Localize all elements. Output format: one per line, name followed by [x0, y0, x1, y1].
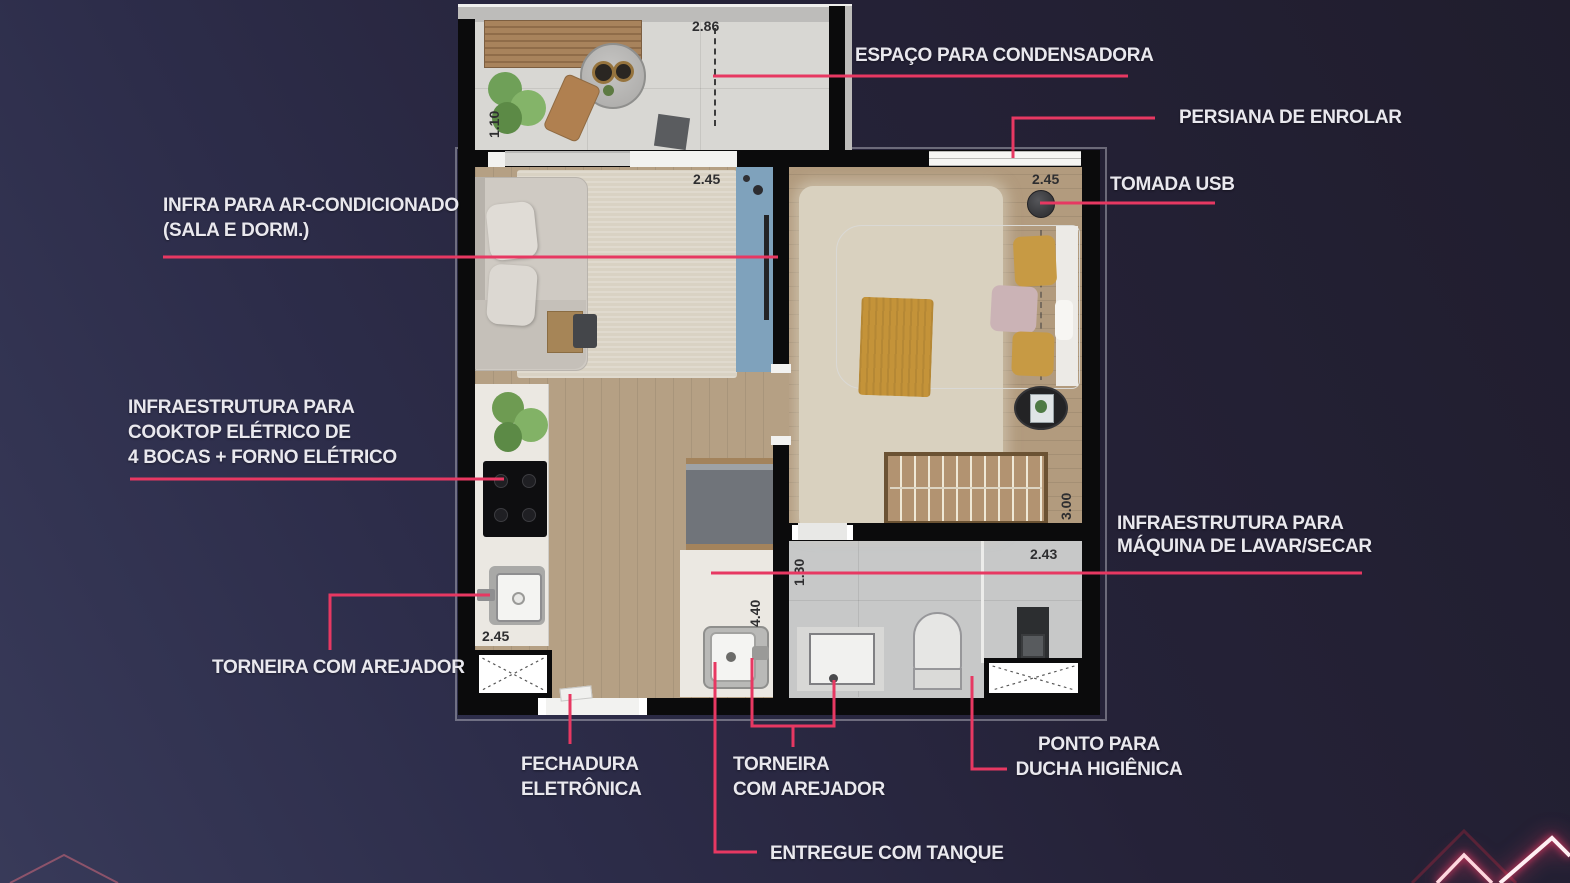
toilet-cistern: [913, 668, 962, 690]
dorm2-pillow-mustard-2: [1011, 331, 1055, 376]
cooktop-burner-4: [522, 508, 536, 522]
wall-right: [1082, 150, 1100, 715]
label-persiana: PERSIANA DE ENROLAR: [1179, 105, 1402, 130]
label-infra-maquina: INFRAESTRUTURA PARA MÁQUINA DE LAVAR/SEC…: [1117, 512, 1372, 558]
balcony-left-wall: [458, 19, 475, 151]
label-ponto-ducha: PONTO PARA DUCHA HIGIÊNICA: [1013, 732, 1185, 782]
washer-space-inner: [1021, 634, 1045, 658]
label-fechadura-line2: ELETRÔNICA: [521, 777, 642, 802]
label-espaco-condensadora-line1: ESPAÇO PARA CONDENSADORA: [855, 43, 1154, 68]
mountain-neon-small: [1437, 855, 1492, 883]
balcony-door-jamb: [488, 152, 505, 167]
bathroom-tile-line-h: [789, 600, 1082, 601]
dorm2-pillow-pink: [990, 285, 1038, 333]
label-infra-ar: INFRA PARA AR-CONDICIONADO (SALA E DORM.…: [163, 193, 459, 243]
cooktop-burner-2: [522, 474, 536, 488]
hall-door-jamb-bottom: [771, 436, 791, 445]
dim-banheiro-largura: 2.43: [1030, 546, 1057, 562]
kitchen-shaft: [474, 650, 552, 698]
dim-sala-profundidade: 4.40: [747, 600, 763, 627]
label-ponto-ducha-line1: PONTO PARA: [1013, 732, 1185, 757]
dorm1-tv: [764, 215, 769, 320]
bathroom-door-jamb-left: [792, 525, 798, 540]
cooktop: [483, 461, 547, 537]
balcony-tile-line-v2: [700, 18, 701, 150]
dorm2-pillow-white: [1055, 300, 1073, 340]
entry-door-jamb-right: [639, 698, 647, 715]
label-infra-cooktop: INFRAESTRUTURA PARA COOKTOP ELÉTRICO DE …: [128, 395, 397, 470]
kitchen-faucet: [477, 589, 495, 601]
table-bowl-1: [592, 61, 615, 84]
label-torneira-banheiro: TORNEIRA COM AREJADOR: [733, 752, 885, 802]
bathroom-divider: [981, 541, 984, 663]
hall-door-floor: [773, 373, 789, 436]
balcony-sliding-door: [505, 151, 630, 166]
dim-banheiro-profundidade: 1.30: [791, 559, 807, 586]
bathroom-door-opening: [798, 523, 847, 540]
label-infra-ar-line1: INFRA PARA AR-CONDICIONADO: [163, 193, 459, 218]
bath-basin-faucet: [829, 674, 838, 683]
label-infra-maquina-line1: INFRAESTRUTURA PARA: [1117, 512, 1372, 535]
wardrobe-rail: [890, 487, 1042, 489]
label-infra-cooktop-line1: INFRAESTRUTURA PARA: [128, 395, 397, 420]
bathroom-shaft: [984, 658, 1083, 698]
hall-door-jamb-top: [771, 364, 791, 373]
dorm2-pillow-mustard-1: [1013, 235, 1058, 287]
label-entregue-tanque-line1: ENTREGUE COM TANQUE: [770, 841, 1004, 866]
dorm1-shelf-dot-2: [753, 185, 763, 195]
bath-basin: [809, 633, 875, 685]
balcony-right-outer: [845, 6, 852, 151]
table-plant: [603, 85, 614, 96]
label-espaco-condensadora: ESPAÇO PARA CONDENSADORA: [855, 43, 1154, 68]
label-torneira-banheiro-line2: COM AREJADOR: [733, 777, 885, 802]
side-table-plant-leaves: [1035, 400, 1047, 413]
wall-left: [458, 150, 475, 715]
kitchen-plant-leaf3: [494, 422, 522, 452]
label-torneira-cozinha: TORNEIRA COM AREJADOR: [212, 655, 465, 680]
dim-dorm2-largura: 2.45: [1032, 171, 1059, 187]
corner-decor-left: [0, 843, 140, 883]
entry-door-jamb-left: [538, 698, 546, 715]
label-tomada-usb: TOMADA USB: [1110, 172, 1235, 197]
label-persiana-line1: PERSIANA DE ENROLAR: [1179, 105, 1402, 130]
dim-dorm2-profundidade: 3.00: [1058, 493, 1074, 520]
dorm1-pillow-1: [485, 201, 539, 262]
dim-cozinha-largura: 2.45: [482, 628, 509, 644]
label-fechadura-line1: FECHADURA: [521, 752, 642, 777]
label-fechadura: FECHADURA ELETRÔNICA: [521, 752, 642, 802]
mountain-neon-large: [1500, 838, 1570, 883]
usb-socket: [1027, 190, 1055, 218]
balcony-tile-line-h1: [475, 88, 829, 89]
dim-varanda-profundidade: 1.10: [486, 111, 502, 138]
dim-varanda-largura: 2.86: [692, 18, 719, 34]
kitchen-shaft-x: [479, 655, 547, 693]
dorm2-window-mullion: [929, 158, 1081, 159]
label-infra-cooktop-line3: 4 BOCAS + FORNO ELÉTRICO: [128, 445, 397, 470]
dorm1-chair: [573, 314, 597, 348]
label-ponto-ducha-line2: DUCHA HIGIÊNICA: [1013, 757, 1185, 782]
condenser-mat: [654, 114, 690, 150]
label-infra-maquina-line2: MÁQUINA DE LAVAR/SECAR: [1117, 535, 1372, 558]
kitchen-sink-drain: [512, 592, 525, 605]
laundry-appliance: [686, 464, 773, 544]
corner-decor-right: [1390, 803, 1570, 883]
cooktop-burner-1: [494, 474, 508, 488]
dim-dorm1-largura: 2.45: [693, 171, 720, 187]
tank-knob: [726, 652, 736, 662]
label-torneira-cozinha-line1: TORNEIRA COM AREJADOR: [212, 655, 465, 680]
label-infra-ar-line2: (SALA E DORM.): [163, 218, 459, 243]
dorm1-pillow-2: [486, 263, 538, 326]
condenser-dashed-line: [714, 28, 716, 126]
label-torneira-banheiro-line1: TORNEIRA: [733, 752, 885, 777]
label-entregue-tanque: ENTREGUE COM TANQUE: [770, 841, 1004, 866]
bathroom-door-jamb-right: [847, 525, 853, 540]
label-infra-cooktop-line2: COOKTOP ELÉTRICO DE: [128, 420, 397, 445]
balcony-door-fixed-panel: [630, 151, 737, 167]
balcony-right-wall: [829, 6, 845, 151]
cooktop-burner-3: [494, 508, 508, 522]
bathroom-shaft-x: [989, 663, 1078, 693]
dorm2-throw: [858, 297, 933, 397]
mountain-outline-left: [10, 855, 118, 883]
label-tomada-usb-line1: TOMADA USB: [1110, 172, 1235, 197]
toilet-bowl: [913, 612, 962, 670]
table-bowl-2: [613, 61, 634, 82]
tank-faucet-arm: [752, 646, 769, 660]
dorm1-shelf-dot-1: [743, 175, 750, 182]
floorplan-scene: 2.86 1.10 2.45 2.45 3.00 1.30 2.43 4.40 …: [0, 0, 1570, 883]
